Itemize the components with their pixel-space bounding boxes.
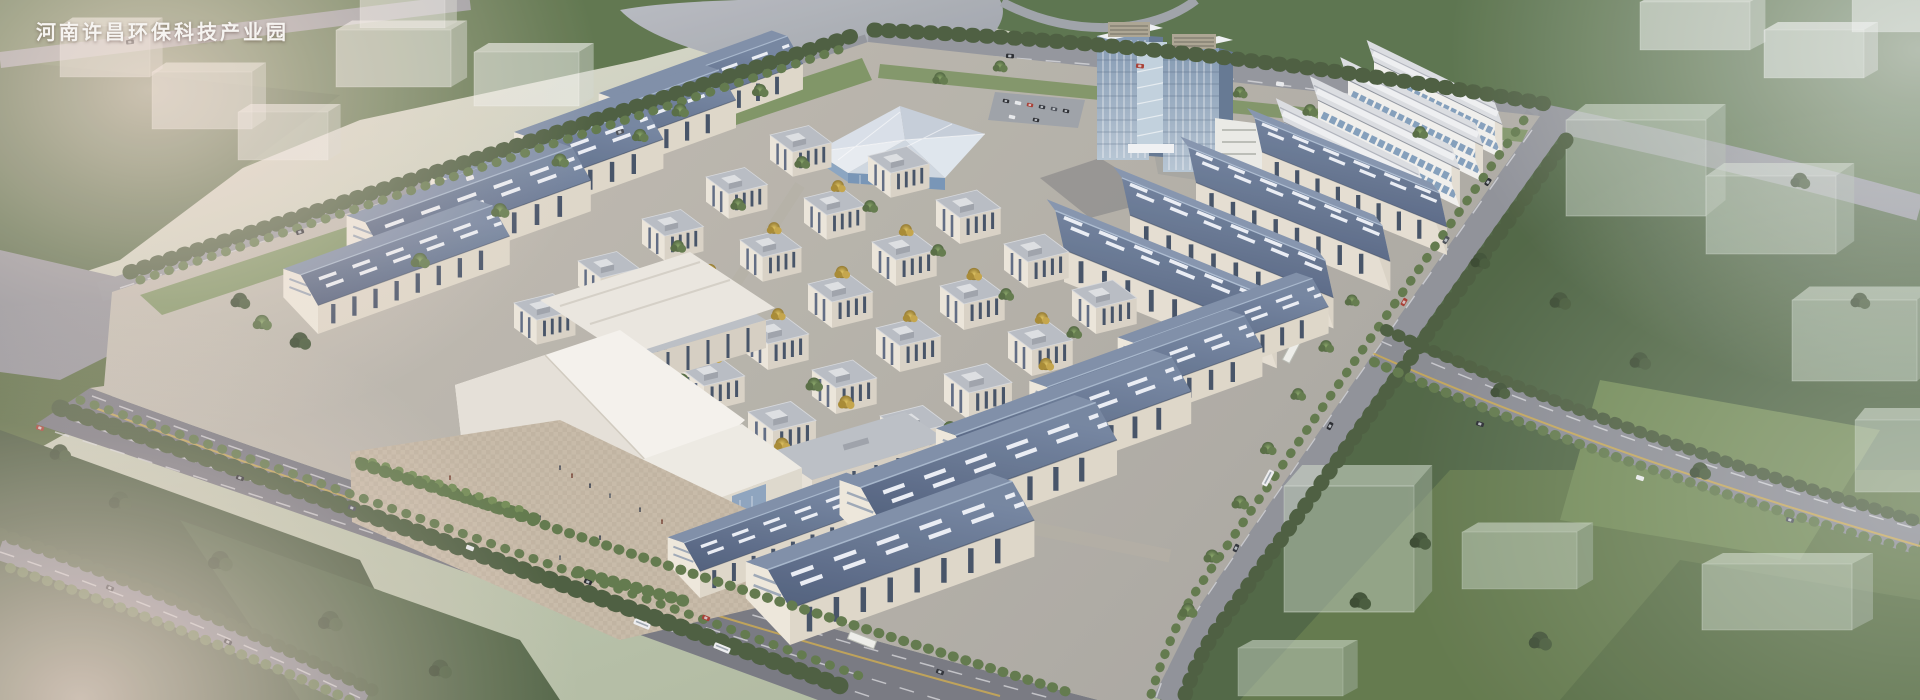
aerial-render bbox=[0, 0, 1920, 700]
project-title-watermark: 河南许昌环保科技产业园 bbox=[36, 16, 289, 45]
aerial-render-viewport: 河南许昌环保科技产业园 bbox=[0, 0, 1920, 700]
atmosphere-haze bbox=[0, 0, 1920, 700]
